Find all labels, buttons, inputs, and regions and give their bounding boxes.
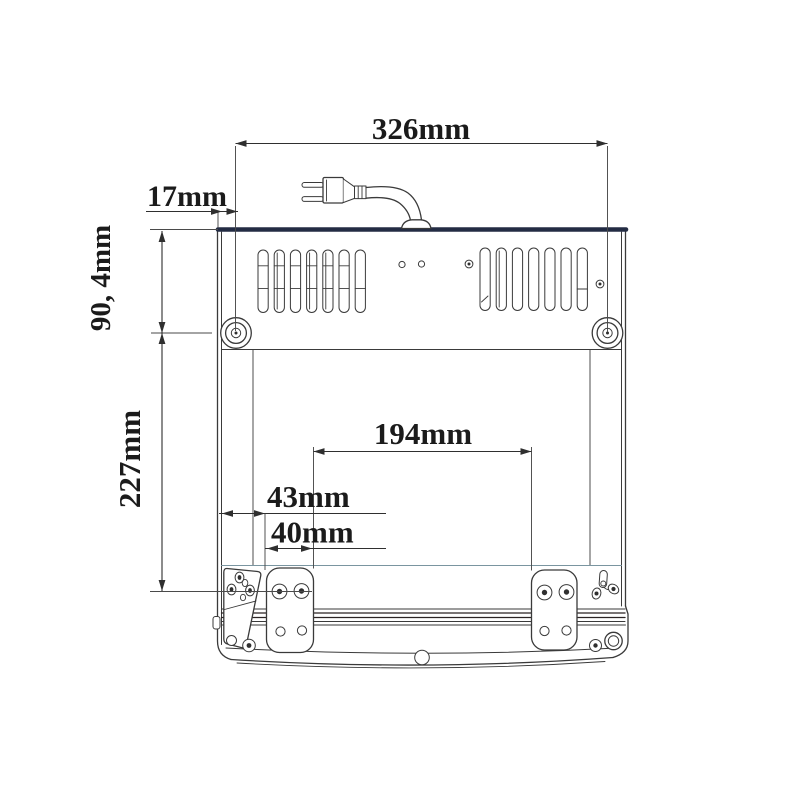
dim-40: 40mm — [265, 515, 386, 552]
arrowhead — [254, 510, 265, 517]
vent-slot — [577, 248, 587, 311]
right-mount-plate — [532, 570, 578, 650]
vent-slot — [323, 250, 333, 313]
vent-slot — [307, 250, 317, 313]
mount-screw-left — [221, 318, 252, 349]
plug-taper — [344, 179, 355, 203]
vent-slot — [529, 248, 539, 311]
arrowhead — [597, 140, 608, 147]
cord-grommet — [402, 220, 432, 229]
dimension-drawing: 326mm 17mm 90, 4mm 227mm 194mm 43mm — [0, 0, 800, 800]
plug-prong — [302, 197, 324, 202]
vent-slot — [512, 248, 522, 311]
dim-90-4: 90, 4mm — [85, 225, 218, 591]
vent-slot — [561, 248, 571, 311]
plug-prong — [302, 183, 324, 188]
screw-small-center — [465, 260, 473, 268]
dim-90-4-label: 90, 4mm — [85, 225, 117, 331]
arrowhead — [159, 580, 166, 591]
vent-slot — [258, 250, 268, 313]
arrowhead — [159, 333, 166, 344]
power-cord — [366, 187, 422, 221]
plug-ferrule — [355, 186, 367, 199]
dim-194-label: 194mm — [374, 416, 472, 451]
vent-slot — [545, 248, 555, 311]
power-plug — [302, 178, 366, 204]
dim-17: 17mm — [146, 180, 238, 228]
tray-corner-hole — [605, 632, 622, 649]
dim-43-label: 43mm — [267, 479, 350, 514]
tray-center-hole — [415, 650, 430, 665]
vent-slot — [496, 248, 506, 311]
left-hinge-bracket — [224, 568, 261, 651]
right-hinge-bracket — [590, 570, 623, 651]
left-edge-clip — [213, 617, 220, 630]
dim-227-label: 227mm — [112, 410, 147, 508]
left-mount-plate — [267, 568, 314, 653]
dim-326-label: 326mm — [372, 111, 470, 146]
right-vent-group — [480, 248, 587, 311]
vent-slot — [480, 248, 490, 311]
left-vent-group — [258, 250, 365, 313]
vent-slot — [355, 250, 365, 313]
vent-slot — [274, 250, 284, 313]
arrowhead — [159, 231, 166, 242]
arrowhead — [222, 510, 233, 517]
screw-small-right — [596, 280, 604, 288]
dim-17-label: 17mm — [147, 180, 227, 213]
drawing-canvas: 326mm 17mm 90, 4mm 227mm 194mm 43mm — [0, 0, 800, 800]
arrowhead — [314, 448, 325, 455]
vent-slot — [290, 250, 300, 313]
dim-40-label: 40mm — [271, 515, 354, 550]
vent-slot — [339, 250, 349, 313]
arrowhead — [236, 140, 247, 147]
panel-holes — [399, 261, 425, 268]
arrowhead — [159, 322, 166, 333]
dim-227: 227mm — [112, 333, 312, 592]
arrowhead — [521, 448, 532, 455]
